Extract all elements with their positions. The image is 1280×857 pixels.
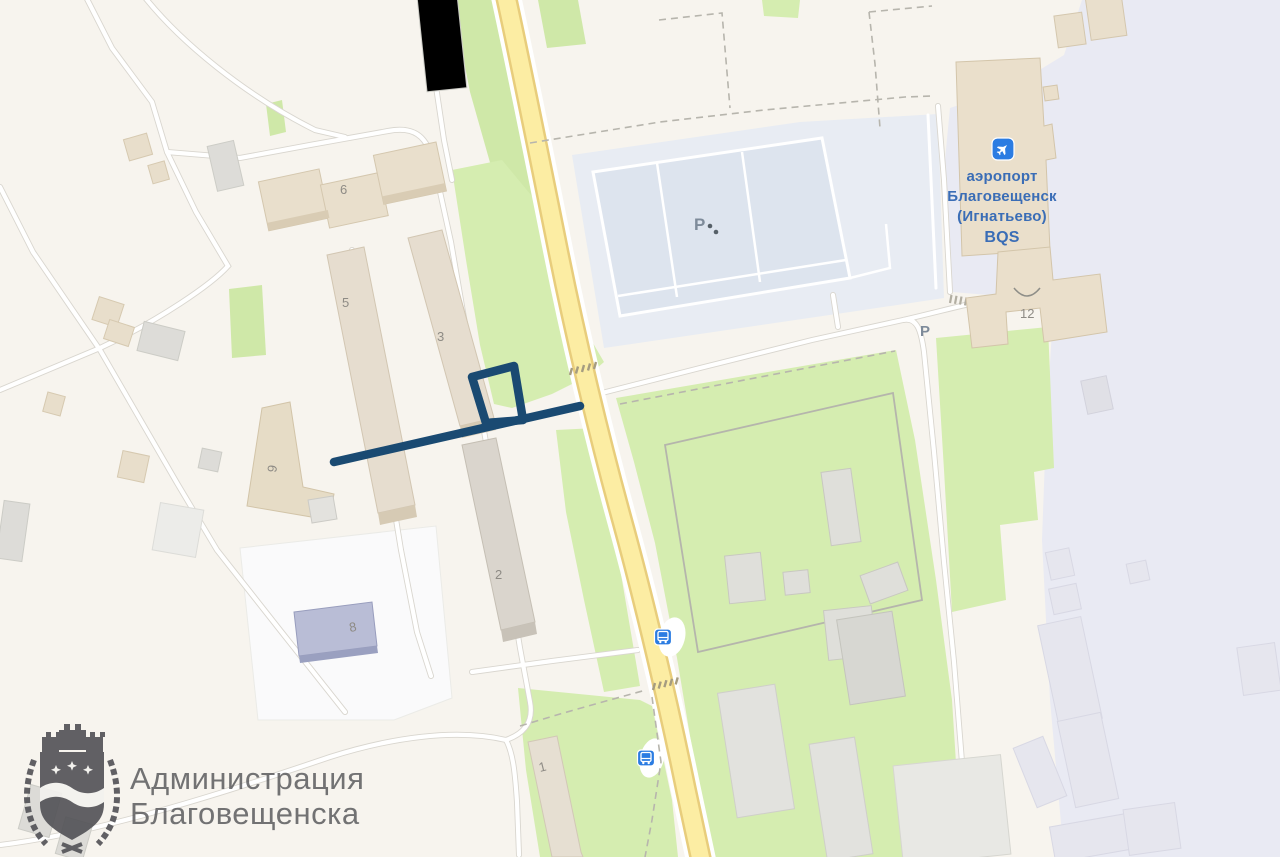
bus-stop-icon[interactable]	[655, 629, 672, 645]
airport-label-line1: аэропорт	[966, 168, 1037, 185]
bus-stop-icon[interactable]	[638, 750, 655, 766]
label-building-5: 5	[342, 295, 349, 310]
airport-label-line2: Благовещенск	[947, 188, 1057, 205]
label-building-12: 12	[1020, 306, 1034, 321]
label-building-2: 2	[495, 567, 502, 582]
parking-dot-icon	[708, 224, 713, 229]
airport-label-line3: (Игнатьево)	[957, 208, 1047, 225]
map-screenshot: 6 5 3 9 2 8 1 12 P P аэропорт	[0, 0, 1280, 857]
parking-label-main: P	[694, 215, 705, 234]
watermark-line2: Благовещенска	[130, 796, 360, 831]
label-building-6: 6	[340, 182, 347, 197]
airport-label-code: BQS	[984, 229, 1019, 246]
watermark-line1: Администрация	[130, 761, 364, 796]
building-8	[294, 602, 378, 663]
airplane-icon[interactable]	[992, 138, 1014, 160]
map-canvas[interactable]: 6 5 3 9 2 8 1 12 P P аэропорт	[0, 0, 1280, 857]
label-building-3: 3	[437, 329, 444, 344]
parking-label-east: P	[920, 323, 930, 340]
parking-dot-icon	[714, 230, 719, 235]
